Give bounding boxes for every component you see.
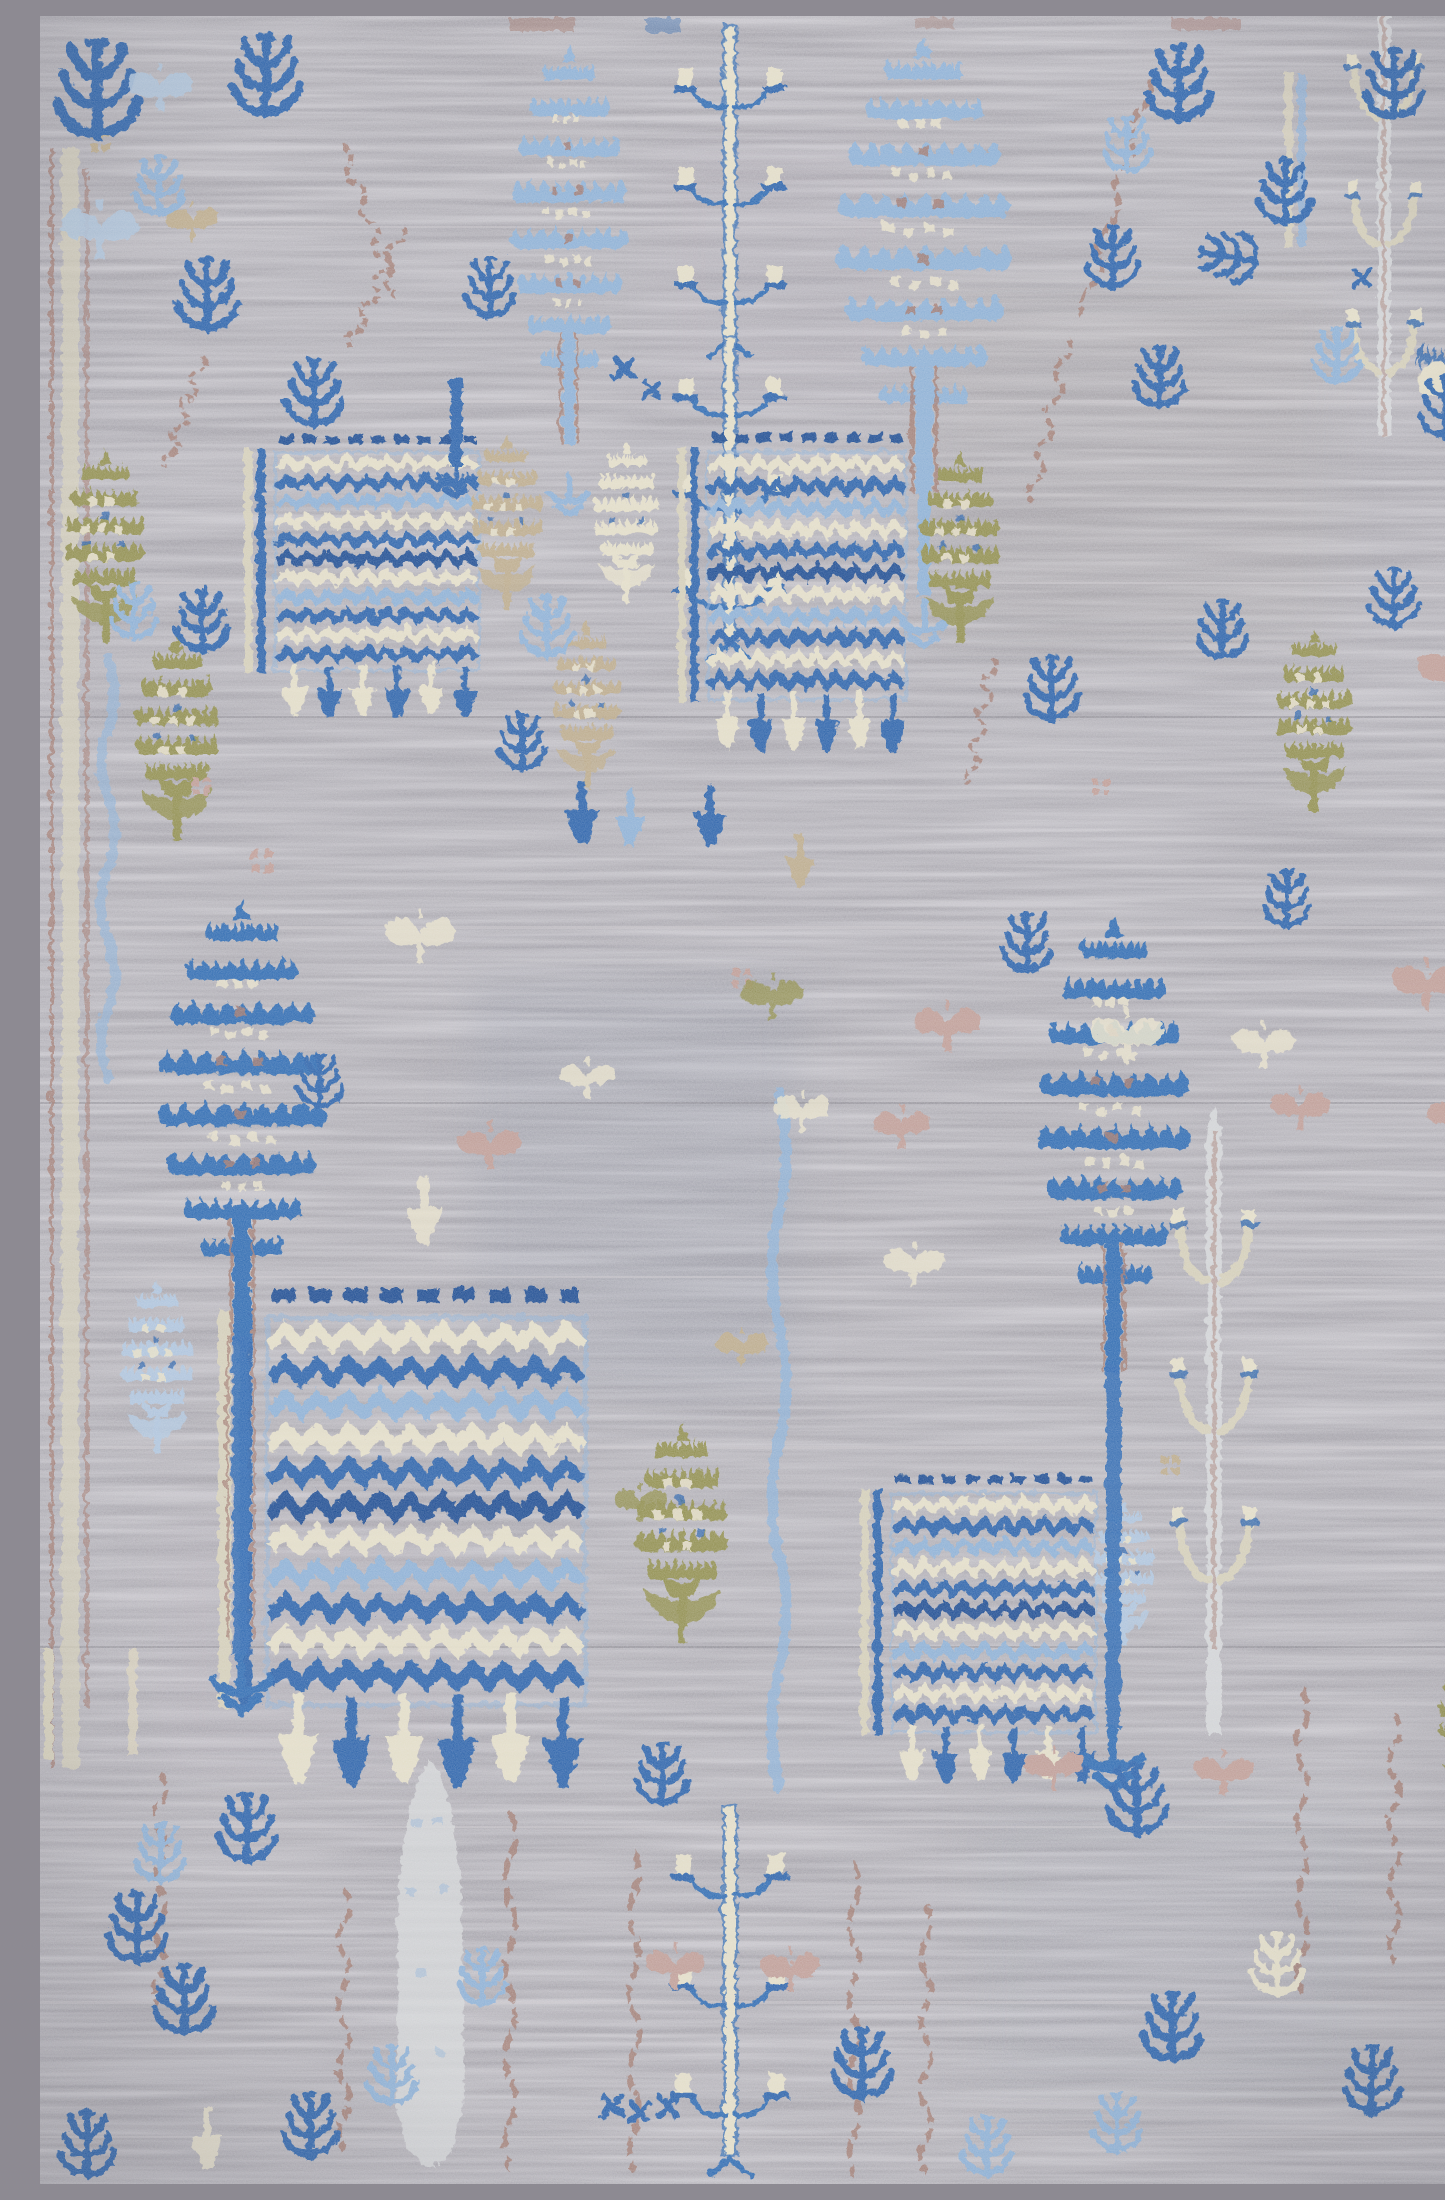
rug-photo	[40, 16, 1445, 2184]
vignette	[40, 16, 1445, 2184]
rug-illustration	[40, 16, 1445, 2184]
